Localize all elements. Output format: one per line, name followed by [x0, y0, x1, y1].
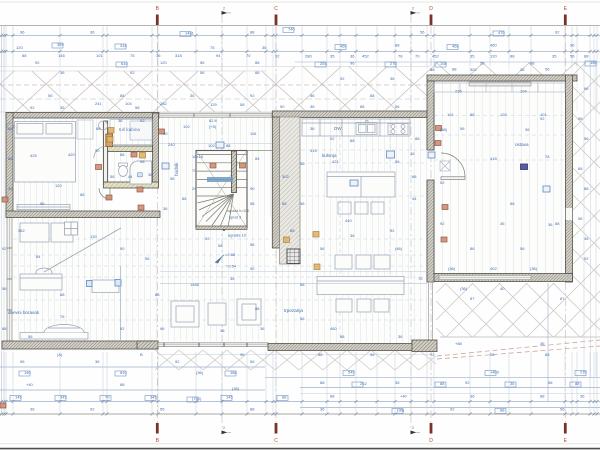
svg-text:58: 58: [250, 201, 255, 206]
svg-text:90: 90: [95, 148, 100, 153]
svg-text:56: 56: [48, 93, 53, 98]
svg-text:36: 36: [60, 105, 65, 110]
svg-text:56: 56: [490, 352, 495, 357]
svg-text:56: 56: [584, 136, 589, 141]
svg-text:40: 40: [500, 286, 505, 291]
svg-text:88: 88: [155, 292, 160, 297]
svg-text:318: 318: [175, 53, 182, 58]
svg-text:92: 92: [2, 246, 7, 251]
svg-text:146: 146: [58, 53, 65, 58]
svg-text:ograda h=100: ograda h=100: [227, 209, 249, 213]
svg-text:1468: 1468: [190, 282, 200, 287]
svg-text:84: 84: [36, 254, 41, 259]
svg-text:36: 36: [260, 326, 265, 331]
svg-text:120: 120: [490, 54, 497, 59]
svg-text:tuš kabina: tuš kabina: [119, 127, 140, 132]
svg-text:82.8: 82.8: [209, 118, 218, 123]
svg-text:96: 96: [20, 359, 25, 364]
svg-text:96: 96: [350, 61, 355, 66]
svg-text:75: 75: [210, 45, 215, 50]
svg-text:(A): (A): [57, 352, 63, 357]
svg-text:88: 88: [584, 186, 589, 191]
svg-text:56: 56: [200, 70, 205, 75]
svg-text:35: 35: [552, 54, 557, 59]
svg-text:88: 88: [22, 53, 27, 58]
svg-text:92: 92: [584, 256, 589, 261]
svg-text:120: 120: [160, 60, 167, 65]
svg-text:(36): (36): [232, 386, 240, 391]
svg-text:36: 36: [148, 172, 153, 177]
svg-text:92: 92: [340, 76, 345, 81]
svg-text:56: 56: [560, 407, 565, 412]
svg-text:75: 75: [192, 168, 197, 173]
svg-text:C: C: [274, 6, 278, 12]
svg-text:282: 282: [160, 101, 167, 106]
svg-text:88: 88: [120, 382, 125, 387]
svg-text:92: 92: [540, 116, 545, 121]
svg-text:36: 36: [190, 93, 195, 98]
svg-text:88: 88: [96, 126, 101, 131]
svg-text:76: 76: [60, 314, 65, 319]
svg-text:280: 280: [305, 54, 312, 59]
svg-text:302: 302: [470, 67, 477, 72]
svg-text:460: 460: [490, 43, 497, 48]
svg-text:+88: +88: [455, 341, 463, 346]
svg-text:88: 88: [120, 152, 125, 157]
svg-text:88: 88: [540, 394, 545, 399]
svg-text:84: 84: [255, 156, 260, 161]
svg-text:2: 2: [412, 426, 414, 430]
svg-text:88: 88: [226, 143, 231, 148]
svg-text:56: 56: [420, 30, 425, 35]
svg-text:88: 88: [182, 196, 187, 201]
svg-text:92: 92: [30, 105, 35, 110]
svg-text:56: 56: [200, 60, 205, 65]
svg-text:36: 36: [395, 380, 400, 385]
svg-text:56: 56: [40, 201, 45, 206]
svg-text:56: 56: [460, 126, 465, 131]
svg-text:88: 88: [510, 54, 515, 59]
svg-text:36: 36: [163, 206, 168, 211]
svg-text:29: 29: [192, 186, 197, 191]
svg-text:56: 56: [578, 216, 583, 221]
svg-text:92: 92: [175, 359, 180, 364]
svg-text:trpezarija: trpezarija: [284, 308, 303, 313]
svg-text:56: 56: [300, 161, 305, 166]
svg-text:88: 88: [510, 201, 515, 206]
svg-text:75: 75: [130, 53, 135, 58]
svg-text:(46): (46): [395, 246, 403, 251]
svg-text:92: 92: [450, 407, 455, 412]
svg-text:88: 88: [370, 93, 375, 98]
svg-text:36: 36: [220, 328, 225, 333]
svg-text:2: 2: [223, 7, 225, 11]
svg-text:56: 56: [395, 104, 400, 109]
svg-text:90: 90: [163, 131, 168, 136]
svg-text:92: 92: [440, 221, 445, 226]
svg-text:35: 35: [330, 54, 335, 59]
svg-text:2: 2: [412, 7, 414, 11]
svg-text:52: 52: [440, 180, 445, 185]
svg-text:104: 104: [125, 101, 132, 106]
svg-text:236: 236: [455, 89, 462, 94]
svg-text:44: 44: [412, 196, 417, 201]
svg-text:92: 92: [275, 54, 280, 59]
svg-text:90: 90: [280, 104, 285, 109]
svg-text:92: 92: [250, 266, 255, 271]
svg-text:36: 36: [410, 151, 415, 156]
svg-text:36: 36: [310, 126, 315, 131]
svg-text:92: 92: [555, 30, 560, 35]
svg-text:78: 78: [545, 154, 550, 159]
svg-text:36: 36: [320, 407, 325, 412]
svg-text:36: 36: [398, 334, 403, 339]
svg-text:56: 56: [8, 126, 13, 131]
svg-text:88: 88: [530, 61, 535, 66]
svg-text:92: 92: [205, 236, 210, 241]
svg-text:102: 102: [208, 143, 215, 148]
svg-text:58: 58: [240, 102, 245, 107]
svg-text:36: 36: [548, 222, 553, 227]
svg-text:36: 36: [390, 76, 395, 81]
svg-text:92: 92: [465, 380, 470, 385]
svg-text:=2.88: =2.88: [225, 252, 236, 257]
svg-text:362: 362: [18, 228, 25, 233]
svg-text:56: 56: [320, 246, 325, 251]
svg-text:101: 101: [447, 112, 454, 117]
svg-text:88: 88: [250, 30, 255, 35]
svg-text:88: 88: [80, 192, 85, 197]
svg-text:58: 58: [135, 105, 140, 110]
svg-text:302: 302: [282, 174, 289, 179]
svg-text:56: 56: [250, 359, 255, 364]
svg-text:D: D: [429, 438, 433, 444]
svg-text:88: 88: [452, 67, 457, 72]
svg-text:B: B: [140, 352, 143, 357]
svg-text:56: 56: [170, 176, 175, 181]
svg-text:36: 36: [350, 54, 355, 59]
svg-text:35: 35: [470, 54, 475, 59]
svg-text:90: 90: [120, 246, 125, 251]
svg-text:sprat 3: sprat 3: [229, 215, 242, 220]
svg-text:kuhinja: kuhinja: [322, 153, 337, 158]
svg-text:agrada 10: agrada 10: [228, 233, 247, 238]
svg-text:120: 120: [55, 183, 62, 188]
svg-text:92: 92: [390, 228, 395, 233]
svg-text:129: 129: [210, 102, 217, 107]
svg-text:56: 56: [548, 380, 553, 385]
svg-text:36: 36: [470, 394, 475, 399]
svg-text:36: 36: [156, 53, 161, 58]
svg-text:(36): (36): [460, 286, 468, 291]
svg-text:440: 440: [345, 218, 352, 223]
svg-text:56: 56: [570, 54, 575, 59]
svg-text:88: 88: [578, 166, 583, 171]
svg-text:92: 92: [120, 326, 125, 331]
svg-text:56: 56: [250, 242, 255, 247]
svg-text:78: 78: [398, 54, 403, 59]
svg-text:36: 36: [30, 407, 35, 412]
svg-text:DW: DW: [334, 126, 342, 131]
svg-text:58: 58: [140, 159, 145, 164]
svg-text:92: 92: [330, 136, 335, 141]
svg-text:120: 120: [16, 45, 23, 50]
svg-text:90: 90: [250, 186, 255, 191]
svg-text:92: 92: [250, 93, 255, 98]
svg-text:88: 88: [300, 282, 305, 287]
svg-text:92: 92: [130, 70, 135, 75]
svg-text:88: 88: [350, 138, 355, 143]
svg-text:2: 2: [223, 426, 225, 430]
svg-text:87: 87: [470, 296, 475, 301]
svg-text:88: 88: [255, 306, 260, 311]
svg-text:88: 88: [470, 112, 475, 117]
svg-text:36: 36: [8, 186, 13, 191]
svg-text:(36): (36): [530, 266, 538, 271]
svg-text:104: 104: [520, 89, 527, 94]
svg-text:56: 56: [310, 93, 315, 98]
svg-text:88: 88: [2, 326, 7, 331]
svg-text:hodnik: hodnik: [174, 162, 179, 176]
svg-text:36: 36: [230, 276, 235, 281]
svg-text:88: 88: [250, 407, 255, 412]
svg-text:36: 36: [350, 233, 355, 238]
svg-text:16x18: 16x18: [192, 154, 204, 159]
svg-text:415: 415: [310, 148, 317, 153]
svg-text:70: 70: [246, 53, 251, 58]
svg-text:56: 56: [520, 246, 525, 251]
svg-text:+40: +40: [400, 394, 408, 399]
svg-text:56: 56: [395, 159, 400, 164]
svg-text:92: 92: [140, 118, 145, 123]
svg-text:36: 36: [370, 352, 375, 357]
svg-text:+40: +40: [26, 382, 34, 387]
svg-text:36: 36: [520, 67, 525, 72]
svg-text:36: 36: [584, 236, 589, 241]
svg-text:88: 88: [120, 93, 125, 98]
svg-text:94: 94: [216, 53, 221, 58]
svg-text:87: 87: [560, 296, 565, 301]
svg-text:36: 36: [60, 70, 65, 75]
svg-text:96: 96: [20, 30, 25, 35]
svg-text:88: 88: [320, 380, 325, 385]
svg-text:(36): (36): [196, 370, 204, 375]
svg-text:56: 56: [300, 201, 305, 206]
svg-text:88: 88: [255, 60, 260, 65]
svg-text:56: 56: [2, 286, 7, 291]
svg-text:96: 96: [578, 116, 583, 121]
svg-text:36: 36: [525, 127, 530, 132]
svg-text:36: 36: [580, 394, 585, 399]
svg-text:=2.54: =2.54: [226, 264, 237, 269]
svg-text:D: D: [429, 6, 433, 12]
svg-text:418: 418: [490, 156, 497, 161]
svg-text:88: 88: [395, 43, 400, 48]
svg-text:36: 36: [262, 45, 267, 50]
svg-text:68: 68: [412, 174, 417, 179]
svg-text:(+5): (+5): [209, 124, 217, 129]
svg-text:130: 130: [90, 234, 97, 239]
svg-text:70: 70: [415, 54, 420, 59]
svg-text:480: 480: [330, 326, 337, 331]
svg-text:241: 241: [95, 101, 102, 106]
svg-text:96: 96: [584, 86, 589, 91]
svg-text:116: 116: [250, 131, 257, 136]
svg-text:70: 70: [418, 276, 423, 281]
svg-text:88: 88: [584, 54, 589, 59]
svg-text:240: 240: [168, 142, 175, 147]
svg-text:56: 56: [145, 256, 150, 261]
svg-text:88: 88: [415, 136, 420, 141]
svg-text:96: 96: [240, 352, 245, 357]
svg-text:44: 44: [128, 174, 133, 179]
svg-text:88: 88: [360, 104, 365, 109]
svg-text:452: 452: [362, 54, 369, 59]
svg-text:96: 96: [570, 43, 575, 48]
svg-text:421: 421: [332, 159, 339, 164]
svg-text:56: 56: [28, 334, 33, 339]
svg-text:58: 58: [218, 243, 223, 248]
svg-text:88: 88: [340, 334, 345, 339]
svg-text:dnevni boravak: dnevni boravak: [8, 310, 40, 315]
svg-text:88: 88: [255, 70, 260, 75]
svg-text:88: 88: [430, 67, 435, 72]
svg-text:120: 120: [500, 112, 507, 117]
svg-text:56: 56: [480, 61, 485, 66]
svg-text:36: 36: [310, 104, 315, 109]
svg-text:88: 88: [60, 292, 65, 297]
svg-text:92: 92: [35, 60, 40, 65]
svg-text:56: 56: [545, 67, 550, 72]
svg-text:88: 88: [290, 228, 295, 233]
svg-text:96: 96: [160, 326, 165, 331]
svg-text:452: 452: [432, 54, 439, 59]
svg-text:56: 56: [160, 407, 165, 412]
svg-text:88: 88: [330, 394, 335, 399]
svg-text:36: 36: [540, 341, 545, 346]
svg-text:36: 36: [90, 30, 95, 35]
svg-text:88: 88: [545, 352, 550, 357]
svg-text:92: 92: [90, 407, 95, 412]
svg-text:88: 88: [470, 246, 475, 251]
svg-text:58: 58: [110, 174, 115, 179]
svg-text:102: 102: [183, 124, 190, 129]
svg-text:36: 36: [500, 221, 505, 226]
svg-text:88: 88: [555, 221, 560, 226]
svg-text:ostava: ostava: [515, 142, 529, 147]
svg-text:88: 88: [8, 156, 13, 161]
svg-text:(88): (88): [440, 127, 448, 132]
svg-text:425: 425: [30, 153, 37, 158]
svg-text:C: C: [274, 438, 278, 444]
svg-text:420: 420: [68, 152, 75, 157]
svg-text:88: 88: [318, 352, 323, 357]
svg-text:101: 101: [96, 53, 103, 58]
svg-text:402: 402: [490, 266, 497, 271]
svg-text:36: 36: [95, 359, 100, 364]
svg-text:56: 56: [282, 201, 287, 206]
svg-text:(36): (36): [448, 266, 456, 271]
svg-text:36: 36: [118, 118, 123, 123]
svg-text:56: 56: [300, 316, 305, 321]
svg-text:92: 92: [430, 352, 435, 357]
